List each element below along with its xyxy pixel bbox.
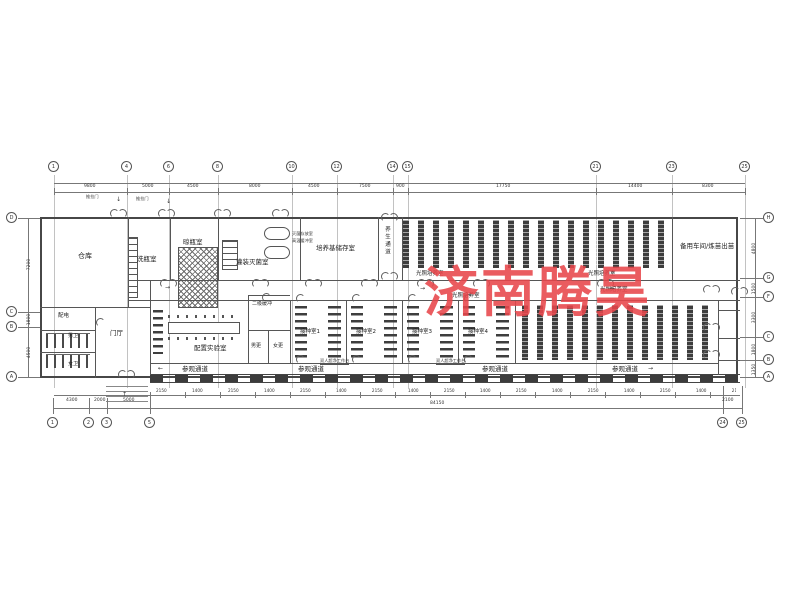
arrow-down-icon: ↓ <box>116 197 121 203</box>
dim-tick <box>742 386 743 414</box>
grid-bubble-top: 4 <box>121 161 132 172</box>
grid-bubble-left: C <box>6 306 17 317</box>
dim-tick <box>169 188 170 195</box>
grid-bubble-bottom: 1 <box>47 417 58 428</box>
dim-stub <box>740 360 763 361</box>
dim-right: 1800 <box>752 344 757 355</box>
dim-tick <box>408 188 409 195</box>
callout-sliding-door: 推拉门 <box>136 197 149 202</box>
dim-tick <box>745 188 746 195</box>
dim-stub <box>740 218 763 219</box>
wall <box>402 217 403 281</box>
dim-left: 1800 <box>27 314 32 325</box>
grid-bubble-right: C <box>763 331 774 342</box>
dim-tick <box>107 398 108 414</box>
room-label-lobby: 门厅 <box>110 330 123 337</box>
dim-left: 7200 <box>27 259 32 270</box>
room-label-chg-f: 女更 <box>273 344 283 350</box>
dim-top: 8300 <box>702 184 713 189</box>
door-swing-icon <box>739 287 748 296</box>
grid-bubble-left: A <box>6 371 17 382</box>
room-label-dry: 晾瓶室 <box>183 239 203 246</box>
callout-clean-bench: 双人超净工作台 <box>320 359 349 365</box>
room-label-spare: 备用车间/炼苗出苗 <box>680 243 734 250</box>
room-label-medium: 培养基储存室 <box>316 245 355 252</box>
dim-tick <box>89 398 90 414</box>
dim-top: 9800 <box>84 184 95 189</box>
wall <box>218 217 219 281</box>
grid-bubble-top: 10 <box>286 161 297 172</box>
wall <box>268 330 269 364</box>
wall <box>95 307 96 378</box>
room-label-inoc2: 接种室2 <box>356 329 376 335</box>
dim-line-top <box>54 192 745 193</box>
arrow-left-icon: ← <box>158 366 163 372</box>
grid-bubble-bottom: 5 <box>144 417 155 428</box>
grid-bubble-right: H <box>763 212 774 223</box>
wall <box>718 310 740 311</box>
dim-top: 8000 <box>249 184 260 189</box>
wall <box>378 217 379 281</box>
arrow-down-icon: ↓ <box>166 199 171 205</box>
wall <box>40 352 95 353</box>
wall <box>170 217 171 281</box>
grid-bubble-right: B <box>763 354 774 365</box>
room-label-inoc4: 接种室4 <box>468 329 488 335</box>
callout-hot-buffer: 高温缓冲室 <box>292 239 313 244</box>
grid-bubble-bottom: 24 <box>717 417 728 428</box>
dim-total: 84150 <box>430 401 444 406</box>
room-label-inoc1: 接种室1 <box>300 329 320 335</box>
corridor-label-visit: 参观通道 <box>298 366 324 373</box>
dim-tick <box>218 188 219 195</box>
dim-right: 4800 <box>752 243 757 254</box>
wall <box>150 363 718 364</box>
dim-tick <box>127 188 128 195</box>
dim-right: 1500 <box>752 283 757 294</box>
dim-stub <box>740 377 763 378</box>
grid-bubble-left: B <box>6 321 17 332</box>
dim-stub <box>740 297 763 298</box>
corridor-label-visit: 参观通道 <box>612 366 638 373</box>
dim-stub <box>740 278 763 279</box>
grid-bubble-top: 12 <box>331 161 342 172</box>
dim-tick <box>393 188 394 195</box>
room-label-wash: 洗瓶室 <box>137 256 157 263</box>
grid-bubble-right: G <box>763 272 774 283</box>
room-label-warehouse: 仓库 <box>78 253 92 261</box>
dim-stub <box>740 337 763 338</box>
dim-stub <box>18 218 40 219</box>
callout-sliding-door: 推拉门 <box>86 195 99 200</box>
wall <box>150 280 151 375</box>
dim-line-bottom-total <box>54 408 742 409</box>
dim-top: 900 <box>396 184 405 189</box>
dim-bottom-left: 2000 <box>94 398 105 403</box>
wall <box>346 300 347 364</box>
dim-tick <box>672 188 673 195</box>
dim-tick <box>337 188 338 195</box>
arrow-right-icon: → <box>648 366 653 372</box>
dim-top: 17750 <box>496 184 510 189</box>
wall <box>40 330 95 331</box>
grid-bubble-top: 23 <box>666 161 677 172</box>
dim-left: 4500 <box>27 347 32 358</box>
grid-bubble-right: A <box>763 371 774 382</box>
dim-top: 5000 <box>142 184 153 189</box>
grid-bubble-top: 6 <box>163 161 174 172</box>
callout-steril-store: 灭菌存放室 <box>292 232 313 237</box>
floor-plan-sheet: 仓库 洗瓶室 晾瓶室 灌装灭菌室 灭菌存放室 高温缓冲室 培养基储存室 养生通道… <box>0 0 800 600</box>
watermark: 济南腾昊 <box>424 248 652 327</box>
grid-bubble-bottom: 2 <box>83 417 94 428</box>
dim-right: 3300 <box>752 312 757 323</box>
arrow-right-icon: → <box>165 285 170 291</box>
dim-bottom-left: 5000 <box>123 398 134 403</box>
grid-centerline <box>745 175 746 388</box>
grid-bubble-bottom: 25 <box>736 417 747 428</box>
grid-bubble-top: 15 <box>402 161 413 172</box>
south-window-wall <box>150 374 740 383</box>
dim-top: 4500 <box>187 184 198 189</box>
room-label-wc-m: 男卫 <box>68 334 78 340</box>
wall <box>128 217 129 307</box>
wall <box>248 330 290 331</box>
grid-bubble-top: 25 <box>739 161 750 172</box>
dim-right-end: 2100 <box>722 398 733 403</box>
wall <box>672 217 673 281</box>
wall <box>300 217 301 281</box>
dim-tick <box>53 398 54 414</box>
grid-bubble-top: 1 <box>48 161 59 172</box>
dim-right: 1350 <box>752 364 757 375</box>
wall <box>718 360 740 361</box>
dim-tick <box>292 188 293 195</box>
grid-bubble-top: 14 <box>387 161 398 172</box>
wall <box>40 307 150 308</box>
grid-bubble-bottom: 3 <box>101 417 112 428</box>
dim-top: 14400 <box>628 184 642 189</box>
dim-run-bottom: 2150 1400 2150 1400 2150 1400 2150 1400 … <box>156 388 736 393</box>
wall <box>248 295 290 296</box>
grid-bubble-top: 21 <box>590 161 601 172</box>
room-label-power: 配电 <box>58 313 69 319</box>
wall <box>290 300 291 364</box>
dim-stub <box>18 377 40 378</box>
dim-line-bottom <box>54 395 740 396</box>
room-label-prep: 配置实验室 <box>194 345 227 352</box>
dim-tick <box>150 398 151 414</box>
dim-top: 4500 <box>308 184 319 189</box>
room-label-wc-f: 女卫 <box>68 362 78 368</box>
room-label-inoc3: 接种室3 <box>412 329 432 335</box>
grid-bubble-right: F <box>763 291 774 302</box>
room-label-fill: 灌装灭菌室 <box>236 259 269 266</box>
grid-bubble-top: 8 <box>212 161 223 172</box>
corridor-label-visit: 参观通道 <box>182 366 208 373</box>
wall <box>402 300 403 364</box>
callout-clean-bench: 双人超净工作台 <box>436 359 465 365</box>
dim-top: 7500 <box>359 184 370 189</box>
arrow-up-icon: ↑ <box>122 392 127 398</box>
corridor-label-cure: 养生通道 <box>384 226 390 256</box>
corridor-label-visit: 参观通道 <box>482 366 508 373</box>
dim-tick <box>596 188 597 195</box>
room-label-buffer2: 二级缓冲 <box>252 302 272 308</box>
room-label-chg-m: 男更 <box>251 344 261 350</box>
dim-stub <box>18 327 40 328</box>
dim-tick <box>54 188 55 195</box>
dim-bottom-left: 4300 <box>66 398 77 403</box>
grid-bubble-left: D <box>6 212 17 223</box>
wall <box>718 338 740 339</box>
